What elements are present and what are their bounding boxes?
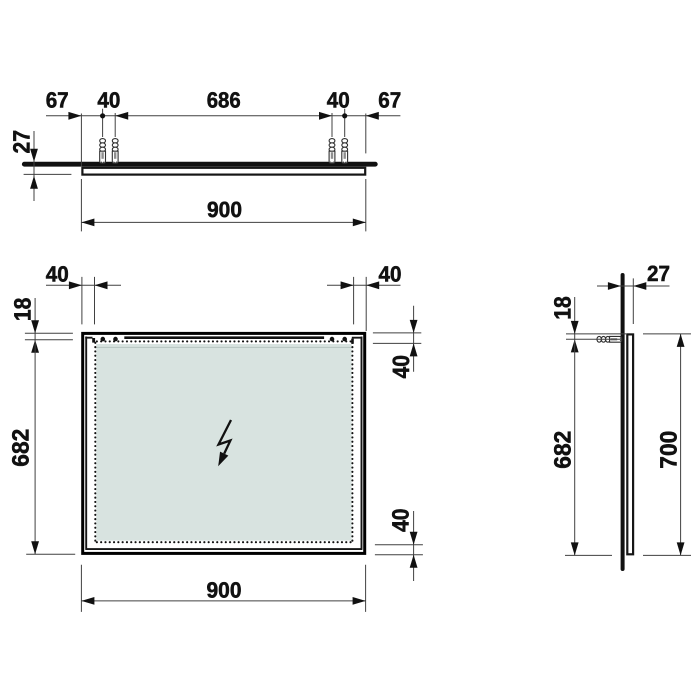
svg-text:67: 67 bbox=[46, 88, 69, 113]
svg-text:682: 682 bbox=[8, 429, 34, 467]
svg-text:686: 686 bbox=[207, 88, 241, 113]
svg-text:67: 67 bbox=[378, 88, 401, 113]
svg-text:40: 40 bbox=[46, 262, 69, 287]
svg-text:40: 40 bbox=[388, 355, 414, 379]
svg-text:682: 682 bbox=[550, 431, 576, 469]
svg-text:900: 900 bbox=[207, 197, 242, 222]
svg-text:700: 700 bbox=[656, 431, 682, 469]
svg-text:40: 40 bbox=[379, 262, 402, 287]
svg-text:40: 40 bbox=[388, 508, 414, 532]
svg-text:18: 18 bbox=[10, 298, 36, 322]
svg-text:900: 900 bbox=[207, 578, 242, 603]
svg-text:18: 18 bbox=[550, 296, 576, 320]
svg-text:27: 27 bbox=[647, 261, 670, 286]
svg-text:40: 40 bbox=[97, 88, 120, 113]
svg-text:27: 27 bbox=[9, 130, 35, 154]
svg-text:40: 40 bbox=[327, 88, 350, 113]
